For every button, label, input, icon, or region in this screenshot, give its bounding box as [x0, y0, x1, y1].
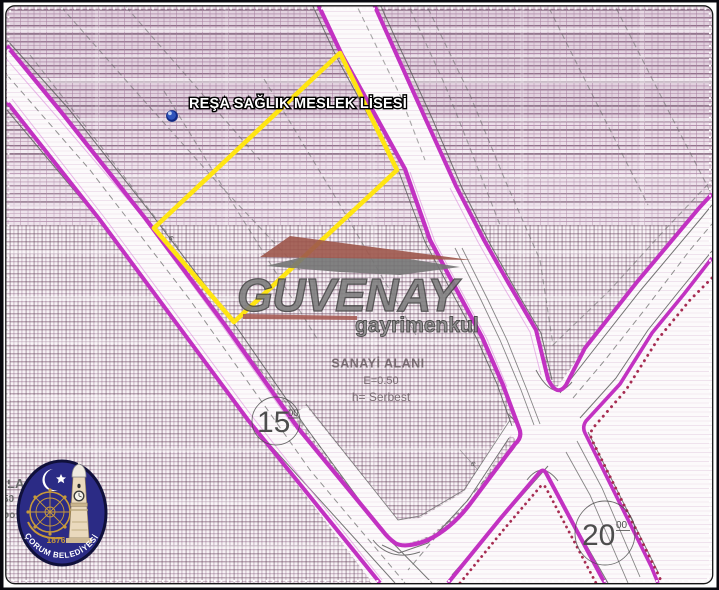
- svg-text:REŞA SAĞLIK MESLEK LİSESİ: REŞA SAĞLIK MESLEK LİSESİ: [189, 94, 407, 112]
- svg-text:h= Serbest: h= Serbest: [352, 390, 411, 404]
- svg-text:00: 00: [288, 408, 299, 419]
- svg-text:00: 00: [616, 520, 628, 531]
- svg-text:15: 15: [257, 406, 290, 439]
- svg-text:1876: 1876: [47, 535, 66, 545]
- svg-text:20: 20: [582, 519, 615, 552]
- svg-text:gayrimenkul: gayrimenkul: [355, 314, 479, 337]
- svg-text:SANAYİ ALANI: SANAYİ ALANI: [331, 356, 424, 371]
- svg-text:E=0.50: E=0.50: [363, 375, 398, 387]
